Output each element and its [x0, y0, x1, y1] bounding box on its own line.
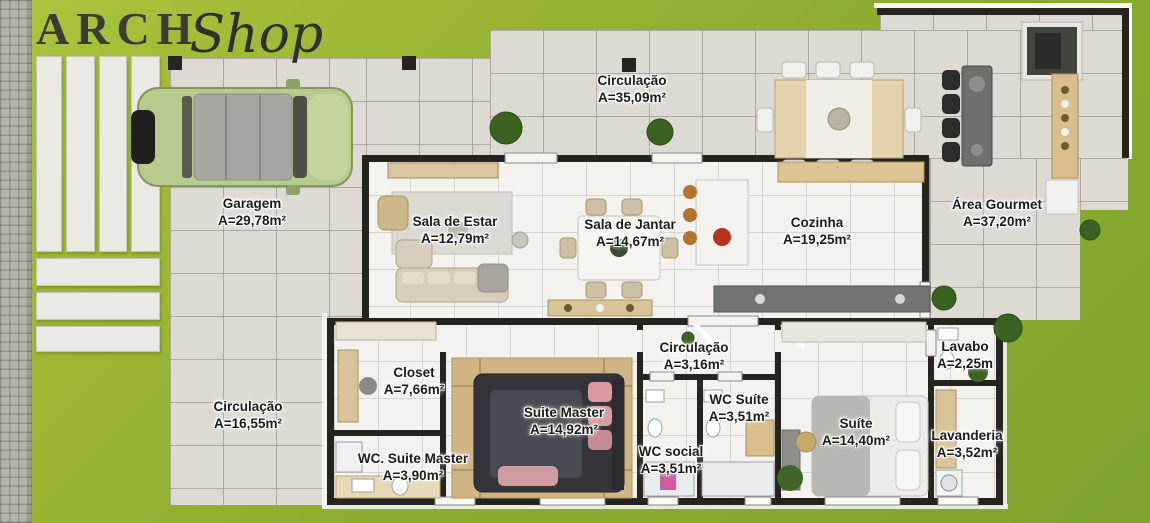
logo-arch-text: ARCH [36, 6, 199, 52]
suite-set [777, 322, 928, 496]
room-area: A=29,78m² [218, 213, 286, 230]
room-label-sala-de-estar: Sala de Estar A=12,79m² [413, 214, 498, 248]
room-label-circulacao-interna: Circulação A=3,16m² [659, 340, 728, 374]
room-area: A=16,55m² [213, 416, 282, 433]
room-label-closet: Closet A=7,66m² [384, 365, 444, 399]
gourmet-area [942, 22, 1082, 214]
room-name: WC social [639, 444, 704, 461]
room-area: A=3,90m² [358, 468, 468, 485]
room-area: A=14,92m² [524, 422, 604, 439]
room-area: A=35,09m² [597, 90, 666, 107]
room-area: A=3,51m² [639, 461, 704, 478]
room-name: Circulação [659, 340, 728, 357]
room-name: Cozinha [783, 215, 851, 232]
room-area: A=12,79m² [413, 231, 498, 248]
room-label-suite: Suíte A=14,40m² [822, 416, 890, 450]
wc-social-fixtures [644, 390, 694, 496]
room-name: Garagem [218, 196, 286, 213]
room-name: Sala de Estar [413, 214, 498, 231]
room-label-circulacao-lateral: Circulação A=16,55m² [213, 399, 282, 433]
room-name: Suíte [822, 416, 890, 433]
room-name: WC. Suite Master [358, 451, 468, 468]
room-label-wc-suite-master: WC. Suite Master A=3,90m² [358, 451, 468, 485]
room-name: Área Gourmet [952, 197, 1042, 214]
room-label-suite-master: Suite Master A=14,92m² [524, 405, 604, 439]
room-area: A=3,16m² [659, 357, 728, 374]
room-area: A=7,66m² [384, 382, 444, 399]
room-area: A=3,52m² [931, 445, 1002, 462]
room-label-wc-social: WC social A=3,51m² [639, 444, 704, 478]
logo-shop-text: Shop [189, 12, 323, 59]
room-label-circulacao-patio: Circulação A=35,09m² [597, 73, 666, 107]
room-name: Suite Master [524, 405, 604, 422]
room-label-cozinha: Cozinha A=19,25m² [783, 215, 851, 249]
room-name: WC Suíte [709, 392, 769, 409]
room-name: Lavabo [937, 339, 993, 356]
red-pot [713, 228, 731, 246]
archshop-logo: ARCH Shop [36, 6, 323, 59]
room-area: A=2,25m [937, 356, 993, 373]
room-label-lavabo: Lavabo A=2,25m [937, 339, 993, 373]
room-area: A=37,20m² [952, 214, 1042, 231]
car-suv [131, 79, 352, 195]
room-area: A=3,51m² [709, 409, 769, 426]
room-label-garagem: Garagem A=29,78m² [218, 196, 286, 230]
room-name: Closet [384, 365, 444, 382]
room-area: A=14,67m² [584, 234, 676, 251]
room-label-sala-de-jantar: Sala de Jantar A=14,67m² [584, 217, 676, 251]
floor-plan-render: Circulação A=35,09m² Garagem A=29,78m² S… [0, 0, 1150, 523]
gourmet-cabinet [1046, 180, 1078, 214]
room-name: Sala de Jantar [584, 217, 676, 234]
room-label-wc-suite: WC Suíte A=3,51m² [709, 392, 769, 426]
room-name: Circulação [597, 73, 666, 90]
room-label-area-gourmet: Área Gourmet A=37,20m² [952, 197, 1042, 231]
room-area: A=14,40m² [822, 433, 890, 450]
room-label-lavanderia: Lavanderia A=3,52m² [931, 428, 1002, 462]
room-name: Circulação [213, 399, 282, 416]
room-area: A=19,25m² [783, 232, 851, 249]
room-name: Lavanderia [931, 428, 1002, 445]
